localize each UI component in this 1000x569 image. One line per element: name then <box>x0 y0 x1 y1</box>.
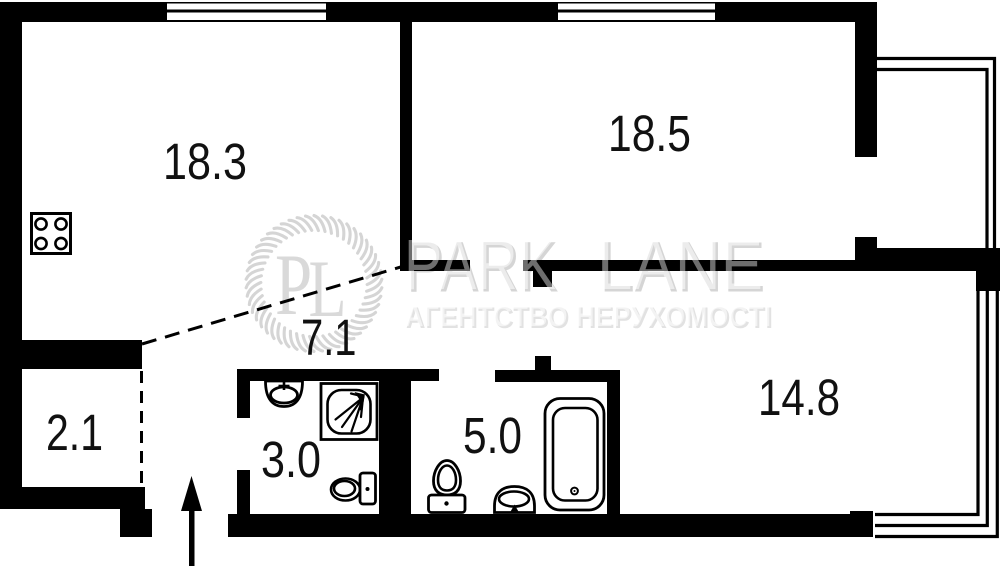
svg-text:5.0: 5.0 <box>463 407 522 464</box>
svg-text:18.5: 18.5 <box>608 105 691 162</box>
svg-text:АГЕНТСТВО НЕРУХОМОСТІ: АГЕНТСТВО НЕРУХОМОСТІ <box>404 300 771 333</box>
svg-text:18.3: 18.3 <box>163 133 247 190</box>
svg-text:7.1: 7.1 <box>301 309 357 366</box>
svg-text:3.0: 3.0 <box>261 431 321 488</box>
svg-text:2.1: 2.1 <box>46 404 103 461</box>
svg-text:14.8: 14.8 <box>758 369 840 426</box>
